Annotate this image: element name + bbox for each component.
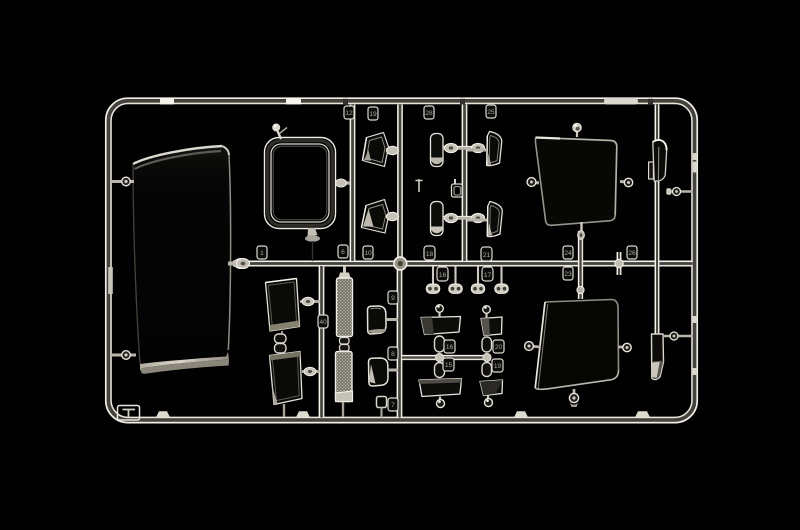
svg-text:9: 9	[391, 295, 395, 302]
svg-text:19: 19	[494, 363, 502, 370]
svg-text:6: 6	[341, 249, 345, 256]
svg-text:8: 8	[391, 351, 395, 358]
svg-text:15: 15	[445, 362, 453, 369]
svg-text:28: 28	[425, 110, 433, 117]
svg-text:21: 21	[483, 252, 491, 259]
svg-text:24: 24	[564, 250, 572, 257]
svg-text:23: 23	[564, 271, 572, 278]
svg-text:12: 12	[345, 110, 353, 117]
svg-text:17: 17	[484, 272, 492, 279]
svg-text:25: 25	[487, 109, 495, 116]
svg-text:18: 18	[426, 251, 434, 258]
svg-text:40: 40	[319, 319, 327, 326]
svg-text:16: 16	[439, 272, 447, 279]
svg-text:26: 26	[628, 250, 636, 257]
svg-text:16: 16	[446, 344, 454, 351]
svg-text:7: 7	[391, 402, 395, 409]
svg-text:20: 20	[495, 344, 503, 351]
svg-text:1: 1	[260, 250, 264, 257]
svg-text:10: 10	[364, 250, 372, 257]
svg-text:19: 19	[369, 111, 377, 118]
